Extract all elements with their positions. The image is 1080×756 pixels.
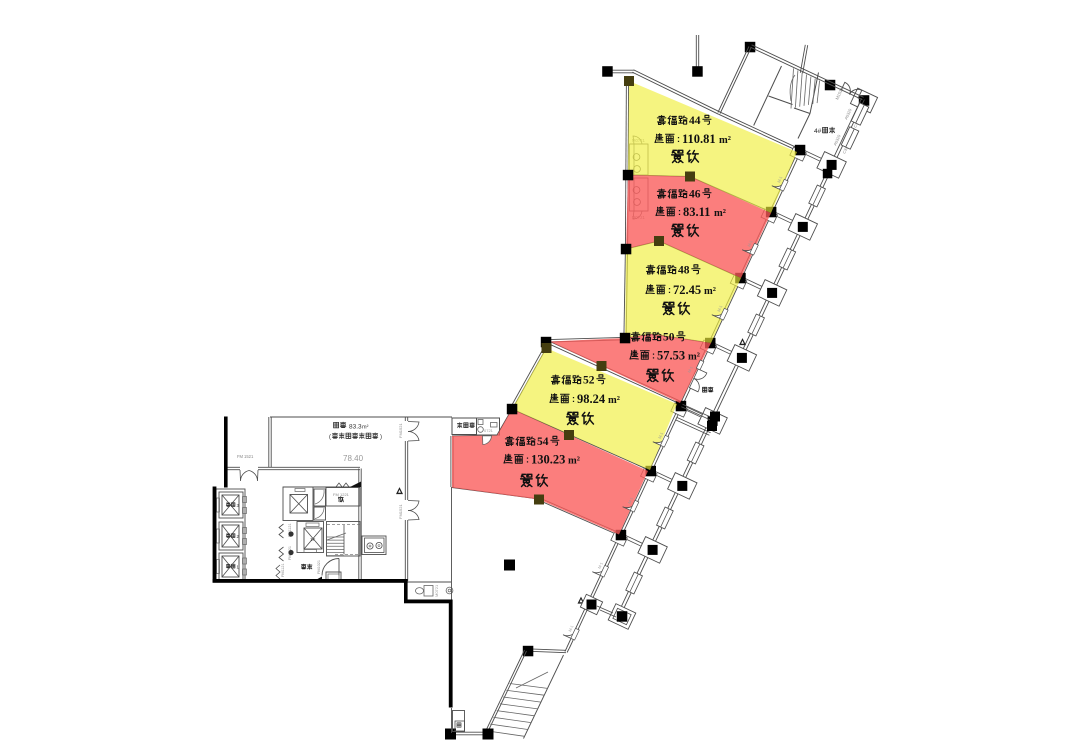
svg-text:): ) (380, 435, 382, 441)
svg-text:72.45: 72.45 (673, 283, 701, 297)
svg-text:98.24: 98.24 (577, 392, 606, 406)
svg-text::: : (526, 455, 529, 465)
svg-text:(: ( (329, 435, 331, 441)
svg-text:M0721: M0721 (434, 584, 439, 597)
svg-text:FM1021: FM1021 (317, 560, 321, 574)
svg-text:m²: m² (688, 351, 700, 362)
svg-text::: : (652, 351, 655, 361)
svg-text:44: 44 (689, 115, 701, 127)
svg-text:54: 54 (537, 436, 549, 448)
svg-text:50: 50 (663, 332, 675, 344)
svg-text:m²: m² (608, 395, 620, 406)
svg-text:130.23: 130.23 (531, 452, 565, 466)
svg-text:FM1121: FM1121 (281, 563, 285, 577)
svg-text:78.40: 78.40 (343, 454, 364, 463)
svg-text:0721: 0721 (484, 428, 494, 433)
svg-text:52: 52 (583, 375, 595, 387)
svg-text:4#: 4# (814, 128, 822, 135)
svg-text:FM: FM (237, 454, 244, 459)
svg-text:1221: 1221 (340, 492, 350, 497)
svg-text:57.53: 57.53 (657, 348, 685, 362)
svg-text::: : (678, 207, 681, 217)
svg-text::: : (668, 285, 671, 295)
svg-text:83.11: 83.11 (683, 205, 710, 219)
svg-text:110.81: 110.81 (682, 132, 716, 146)
svg-text:48: 48 (678, 265, 690, 277)
svg-text:FM: FM (333, 492, 339, 497)
svg-text:FM1521: FM1521 (398, 423, 403, 438)
svg-text:m²: m² (362, 425, 369, 431)
svg-text:1F: 1F (310, 537, 316, 542)
svg-text:1521: 1521 (244, 454, 254, 459)
svg-text:83.3: 83.3 (349, 424, 362, 431)
svg-text:m²: m² (719, 135, 731, 146)
svg-text:46: 46 (689, 189, 701, 201)
svg-text:m²: m² (704, 286, 716, 297)
svg-text:FM1521: FM1521 (398, 504, 403, 519)
svg-text:m²: m² (568, 455, 580, 466)
svg-text:m²: m² (714, 208, 726, 219)
svg-text::: : (677, 134, 680, 144)
svg-text::: : (572, 394, 575, 404)
